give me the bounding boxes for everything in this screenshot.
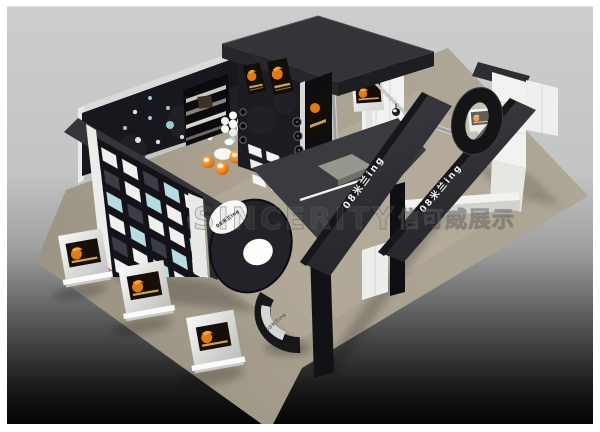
booth-render-image: 08米兰ing 08米兰ing 08米兰ing 08米兰ing [0,0,600,432]
watermark: SINCERITY 信可威展示 [193,202,516,237]
booth-render-scene: 08米兰ing 08米兰ing 08米兰ing 08米兰ing [0,0,600,432]
watermark-latin: SINCERITY [193,202,397,237]
watermark-cjk: 信可威展示 [398,207,516,233]
